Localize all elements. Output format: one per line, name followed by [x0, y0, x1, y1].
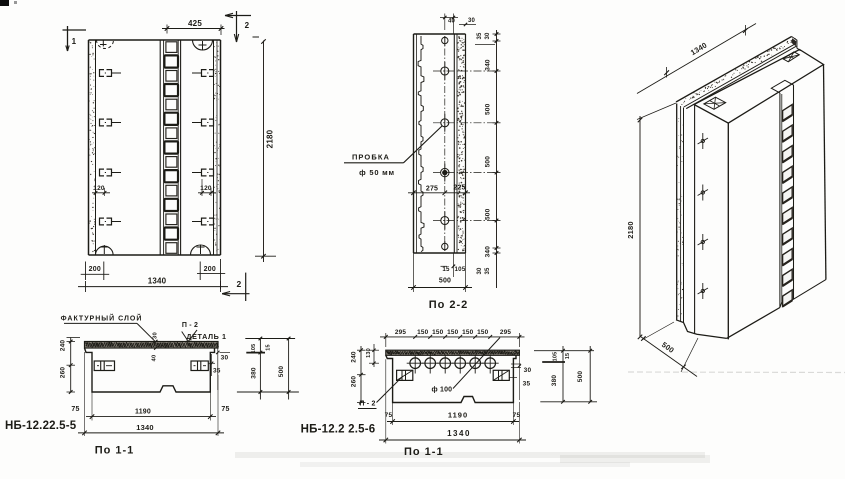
svg-text:30: 30 [221, 355, 229, 362]
svg-text:150: 150 [417, 329, 429, 336]
svg-text:30: 30 [485, 32, 491, 40]
svg-text:500: 500 [485, 103, 492, 115]
svg-text:105: 105 [455, 266, 466, 273]
svg-text:ПРОБКА: ПРОБКА [352, 153, 390, 162]
svg-text:150: 150 [462, 329, 474, 336]
svg-text:35: 35 [523, 381, 531, 388]
svg-text:П - 2: П - 2 [182, 322, 198, 329]
svg-text:2: 2 [237, 279, 242, 289]
svg-text:260: 260 [60, 367, 67, 379]
svg-text:15: 15 [266, 344, 272, 351]
svg-text:75: 75 [385, 412, 393, 419]
svg-text:500: 500 [577, 371, 584, 383]
svg-text:260: 260 [351, 376, 358, 388]
svg-text:35: 35 [485, 267, 491, 275]
svg-text:75: 75 [513, 412, 521, 419]
svg-text:340: 340 [485, 246, 492, 258]
svg-text:75: 75 [71, 406, 79, 413]
svg-text:35: 35 [477, 32, 483, 40]
svg-text:380: 380 [251, 367, 258, 379]
svg-text:105: 105 [553, 352, 559, 362]
svg-text:1: 1 [72, 37, 77, 46]
svg-text:240: 240 [60, 340, 67, 352]
svg-text:295: 295 [500, 329, 512, 336]
svg-text:295: 295 [395, 329, 407, 336]
svg-text:30: 30 [468, 18, 476, 24]
svg-text:150: 150 [477, 329, 489, 336]
svg-text:1340: 1340 [136, 423, 154, 432]
svg-text:105: 105 [251, 344, 257, 354]
svg-text:30: 30 [153, 332, 159, 339]
svg-text:150: 150 [447, 329, 459, 336]
svg-text:30: 30 [524, 367, 532, 374]
svg-text:2180: 2180 [626, 221, 635, 239]
svg-text:40: 40 [448, 19, 456, 25]
svg-text:500: 500 [278, 366, 285, 378]
svg-text:1190: 1190 [135, 409, 151, 416]
svg-text:НБ-12.2 2.5-6: НБ-12.2 2.5-6 [301, 424, 376, 436]
svg-text:380: 380 [551, 375, 558, 387]
svg-text:15: 15 [442, 266, 450, 273]
svg-text:НБ-12.22.5-5: НБ-12.22.5-5 [5, 420, 77, 432]
svg-text:425: 425 [188, 19, 202, 28]
svg-text:По 1-1: По 1-1 [95, 445, 135, 457]
svg-text:1340: 1340 [447, 429, 471, 438]
svg-text:150: 150 [432, 329, 444, 336]
svg-text:200: 200 [89, 266, 101, 273]
svg-text:15: 15 [565, 353, 571, 360]
svg-text:500: 500 [485, 208, 492, 220]
svg-text:ФАКТУРНЫЙ СЛОЙ: ФАКТУРНЫЙ СЛОЙ [61, 314, 143, 323]
svg-text:130: 130 [366, 348, 372, 358]
svg-text:2180: 2180 [266, 129, 275, 148]
svg-text:1190: 1190 [448, 411, 468, 420]
svg-text:40: 40 [152, 355, 158, 362]
svg-text:По 1-1: По 1-1 [404, 446, 444, 458]
svg-text:30: 30 [477, 267, 483, 275]
svg-text:1340: 1340 [148, 277, 167, 286]
svg-text:275: 275 [426, 186, 438, 193]
svg-text:200: 200 [204, 266, 216, 273]
svg-text:2: 2 [245, 21, 250, 30]
svg-text:225: 225 [453, 185, 465, 192]
svg-text:ф 50 мм: ф 50 мм [359, 168, 395, 177]
svg-text:35: 35 [213, 368, 221, 375]
svg-text:340: 340 [485, 59, 492, 71]
svg-text:500: 500 [439, 278, 451, 285]
svg-text:По 2-2: По 2-2 [429, 299, 469, 311]
svg-text:ф 100: ф 100 [432, 387, 453, 394]
svg-text:120: 120 [93, 185, 105, 192]
svg-text:500: 500 [485, 156, 492, 168]
svg-text:75: 75 [221, 406, 229, 413]
svg-text:240: 240 [351, 351, 358, 363]
